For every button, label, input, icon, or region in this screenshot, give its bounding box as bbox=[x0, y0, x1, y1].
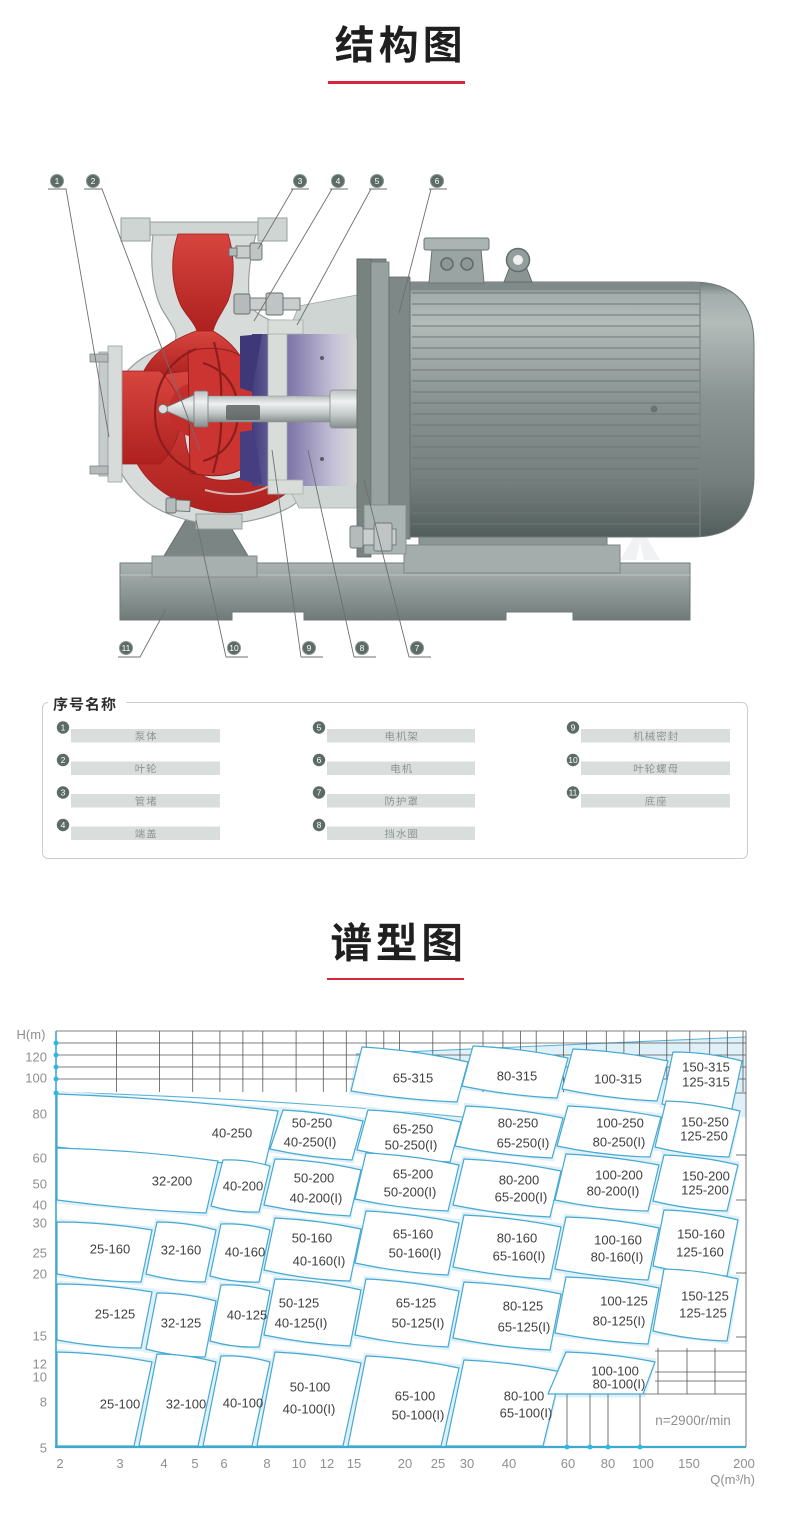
svg-text:65-200(I): 65-200(I) bbox=[495, 1190, 548, 1205]
svg-text:50-250: 50-250 bbox=[292, 1116, 332, 1131]
svg-text:65-160: 65-160 bbox=[393, 1227, 433, 1242]
svg-text:65-250(I): 65-250(I) bbox=[497, 1136, 550, 1151]
svg-text:40-250(I): 40-250(I) bbox=[284, 1135, 337, 1150]
svg-text:8: 8 bbox=[360, 643, 365, 653]
svg-text:65-125: 65-125 bbox=[396, 1296, 436, 1311]
svg-text:80-125: 80-125 bbox=[503, 1299, 543, 1314]
svg-text:3: 3 bbox=[61, 788, 66, 798]
svg-text:H(m): H(m) bbox=[17, 1027, 46, 1042]
svg-text:40-125(I): 40-125(I) bbox=[275, 1316, 328, 1331]
svg-text:5: 5 bbox=[317, 723, 322, 733]
svg-text:50-100: 50-100 bbox=[290, 1380, 330, 1395]
svg-text:4: 4 bbox=[61, 820, 66, 830]
svg-text:5: 5 bbox=[191, 1456, 198, 1471]
svg-text:80-200: 80-200 bbox=[499, 1173, 539, 1188]
svg-text:Q(m³/h): Q(m³/h) bbox=[710, 1472, 755, 1487]
svg-text:25-160: 25-160 bbox=[90, 1242, 130, 1257]
svg-text:80: 80 bbox=[601, 1456, 615, 1471]
svg-text:80-160: 80-160 bbox=[497, 1231, 537, 1246]
svg-text:1: 1 bbox=[55, 176, 60, 186]
svg-text:65-160(I): 65-160(I) bbox=[493, 1249, 546, 1264]
svg-text:15: 15 bbox=[33, 1329, 47, 1344]
svg-text:50-125: 50-125 bbox=[279, 1296, 319, 1311]
svg-text:n=2900r/min: n=2900r/min bbox=[655, 1413, 730, 1428]
svg-text:125-315: 125-315 bbox=[682, 1075, 730, 1090]
svg-text:2: 2 bbox=[56, 1456, 63, 1471]
svg-text:10: 10 bbox=[229, 643, 239, 653]
svg-text:2: 2 bbox=[61, 755, 66, 765]
svg-text:80-100(I): 80-100(I) bbox=[593, 1377, 646, 1392]
svg-text:80-125(I): 80-125(I) bbox=[593, 1314, 646, 1329]
svg-text:120: 120 bbox=[25, 1050, 47, 1065]
svg-text:40-250: 40-250 bbox=[212, 1126, 252, 1141]
svg-text:80-200(I): 80-200(I) bbox=[587, 1184, 640, 1199]
svg-text:100-160: 100-160 bbox=[594, 1233, 642, 1248]
svg-text:50-100(I): 50-100(I) bbox=[392, 1408, 445, 1423]
svg-text:40-100(I): 40-100(I) bbox=[283, 1402, 336, 1417]
svg-text:65-100: 65-100 bbox=[395, 1389, 435, 1404]
svg-text:40-200: 40-200 bbox=[223, 1179, 263, 1194]
svg-text:25: 25 bbox=[431, 1456, 445, 1471]
svg-text:125-125: 125-125 bbox=[679, 1306, 727, 1321]
svg-text:150-200: 150-200 bbox=[682, 1169, 730, 1184]
svg-text:9: 9 bbox=[307, 643, 312, 653]
svg-text:150-250: 150-250 bbox=[681, 1115, 729, 1130]
svg-text:150-315: 150-315 bbox=[682, 1060, 730, 1075]
svg-text:8: 8 bbox=[40, 1395, 47, 1410]
svg-text:5: 5 bbox=[40, 1441, 47, 1456]
svg-text:40: 40 bbox=[33, 1198, 47, 1213]
svg-text:1: 1 bbox=[61, 723, 66, 733]
svg-text:2: 2 bbox=[91, 176, 96, 186]
svg-text:40-160: 40-160 bbox=[225, 1245, 265, 1260]
svg-text:3: 3 bbox=[116, 1456, 123, 1471]
svg-text:100-125: 100-125 bbox=[600, 1294, 648, 1309]
svg-text:8: 8 bbox=[317, 820, 322, 830]
svg-text:100-200: 100-200 bbox=[595, 1168, 643, 1183]
svg-text:80: 80 bbox=[33, 1107, 47, 1122]
svg-text:50-160(I): 50-160(I) bbox=[389, 1246, 442, 1261]
svg-text:150-125: 150-125 bbox=[681, 1289, 729, 1304]
svg-text:30: 30 bbox=[33, 1216, 47, 1231]
svg-text:20: 20 bbox=[33, 1267, 47, 1282]
svg-text:12: 12 bbox=[320, 1456, 334, 1471]
svg-text:125-200: 125-200 bbox=[681, 1183, 729, 1198]
svg-text:5: 5 bbox=[375, 176, 380, 186]
svg-text:65-200: 65-200 bbox=[393, 1167, 433, 1182]
svg-text:10: 10 bbox=[568, 755, 578, 765]
svg-text:9: 9 bbox=[571, 723, 576, 733]
svg-text:7: 7 bbox=[415, 643, 420, 653]
svg-text:11: 11 bbox=[569, 788, 578, 798]
svg-text:30: 30 bbox=[460, 1456, 474, 1471]
svg-text:40-200(I): 40-200(I) bbox=[290, 1191, 343, 1206]
svg-text:10: 10 bbox=[292, 1456, 306, 1471]
svg-text:80-160(I): 80-160(I) bbox=[591, 1250, 644, 1265]
svg-text:60: 60 bbox=[561, 1456, 575, 1471]
svg-text:65-250: 65-250 bbox=[393, 1122, 433, 1137]
svg-text:80-250(I): 80-250(I) bbox=[593, 1135, 646, 1150]
svg-text:32-100: 32-100 bbox=[166, 1397, 206, 1412]
svg-text:32-125: 32-125 bbox=[161, 1316, 201, 1331]
svg-text:40-100: 40-100 bbox=[223, 1396, 263, 1411]
svg-text:20: 20 bbox=[398, 1456, 412, 1471]
svg-text:4: 4 bbox=[336, 176, 341, 186]
svg-text:100: 100 bbox=[632, 1456, 654, 1471]
svg-text:65-100(I): 65-100(I) bbox=[500, 1406, 553, 1421]
svg-text:50-200(I): 50-200(I) bbox=[384, 1185, 437, 1200]
svg-text:8: 8 bbox=[263, 1456, 270, 1471]
svg-text:50: 50 bbox=[33, 1177, 47, 1192]
svg-text:50-250(I): 50-250(I) bbox=[385, 1138, 438, 1153]
svg-text:6: 6 bbox=[317, 755, 322, 765]
svg-text:25-125: 25-125 bbox=[95, 1307, 135, 1322]
svg-text:80-100: 80-100 bbox=[504, 1389, 544, 1404]
svg-text:10: 10 bbox=[33, 1370, 47, 1385]
svg-text:7: 7 bbox=[317, 788, 322, 798]
svg-text:6: 6 bbox=[435, 176, 440, 186]
svg-text:25-100: 25-100 bbox=[100, 1397, 140, 1412]
svg-text:15: 15 bbox=[347, 1456, 361, 1471]
svg-text:50-125(I): 50-125(I) bbox=[392, 1316, 445, 1331]
svg-text:40: 40 bbox=[502, 1456, 516, 1471]
svg-text:11: 11 bbox=[122, 643, 131, 653]
svg-text:3: 3 bbox=[298, 176, 303, 186]
svg-text:100-315: 100-315 bbox=[594, 1072, 642, 1087]
svg-text:100: 100 bbox=[25, 1071, 47, 1086]
svg-text:50-200: 50-200 bbox=[294, 1171, 334, 1186]
svg-text:125-160: 125-160 bbox=[676, 1245, 724, 1260]
svg-text:65-125(I): 65-125(I) bbox=[498, 1320, 551, 1335]
svg-text:100-250: 100-250 bbox=[596, 1116, 644, 1131]
svg-text:6: 6 bbox=[220, 1456, 227, 1471]
svg-text:4: 4 bbox=[160, 1456, 167, 1471]
svg-text:200: 200 bbox=[733, 1456, 755, 1471]
svg-text:40-125: 40-125 bbox=[227, 1308, 267, 1323]
svg-text:25: 25 bbox=[33, 1246, 47, 1261]
svg-text:32-200: 32-200 bbox=[152, 1174, 192, 1189]
svg-text:40-160(I): 40-160(I) bbox=[293, 1254, 346, 1269]
svg-text:60: 60 bbox=[33, 1151, 47, 1166]
svg-text:80-250: 80-250 bbox=[498, 1116, 538, 1131]
svg-text:32-160: 32-160 bbox=[161, 1243, 201, 1258]
svg-text:50-160: 50-160 bbox=[292, 1231, 332, 1246]
svg-text:150: 150 bbox=[678, 1456, 700, 1471]
svg-text:65-315: 65-315 bbox=[393, 1071, 433, 1086]
svg-text:125-250: 125-250 bbox=[680, 1129, 728, 1144]
svg-text:150-160: 150-160 bbox=[677, 1227, 725, 1242]
svg-text:80-315: 80-315 bbox=[497, 1069, 537, 1084]
